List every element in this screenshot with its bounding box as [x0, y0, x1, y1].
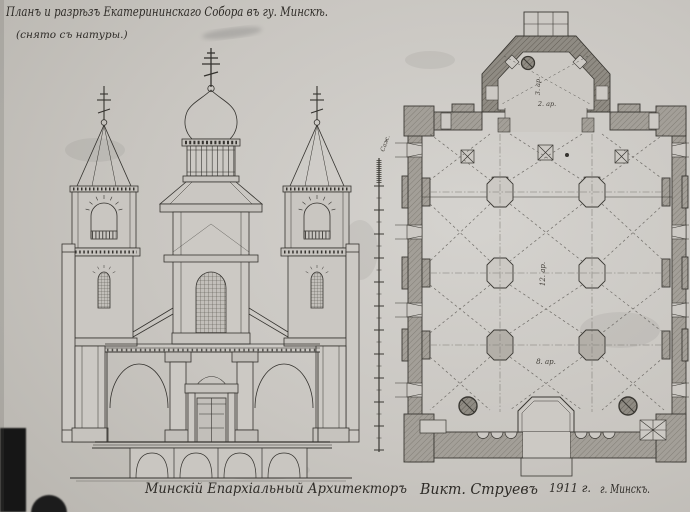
drawing-canvas: Саж. — [0, 0, 690, 512]
apse-stove-circle — [522, 57, 535, 70]
signature-name: Викт. Струевъ — [419, 482, 538, 498]
nave-length-label: 12. ар. — [539, 262, 547, 286]
sheet-subtitle: (снято съ натуры.) — [16, 29, 128, 41]
entrance-portal — [185, 384, 238, 442]
drum-colonnade — [187, 146, 235, 176]
plan-dot-mark — [565, 153, 569, 157]
plan-corner-nw — [656, 106, 686, 136]
plan-corner-ne — [404, 106, 434, 136]
left-edge-shadow — [0, 0, 4, 512]
apse-width-label: 3. ар. — [534, 77, 542, 95]
signature-year: 1911 г. — [549, 480, 591, 495]
narthex-room — [420, 420, 446, 433]
drawing-sheet: Саж. — [0, 0, 690, 512]
plan-west-wall — [408, 110, 422, 462]
central-arched-window — [196, 272, 226, 333]
upper-cornice — [160, 204, 262, 212]
spiral-stair — [640, 420, 666, 440]
sheet-title: Планъ и разрѣзъ Екатерининскаго Собора в… — [5, 5, 328, 20]
signature-place: г. Минскъ. — [600, 481, 650, 496]
nave-width-label: 8. ар. — [536, 358, 556, 366]
bema-opening — [505, 108, 587, 132]
dome-cornice — [182, 139, 240, 146]
inner-porch — [518, 397, 574, 432]
window-sill-band — [172, 333, 250, 344]
apse-depth-label: 2. ар. — [537, 100, 556, 108]
signature-role: Минскій Епархіальный Архитекторъ — [144, 481, 407, 497]
drum-base — [183, 176, 239, 182]
basement — [130, 448, 307, 478]
entrance-passage — [523, 432, 570, 458]
